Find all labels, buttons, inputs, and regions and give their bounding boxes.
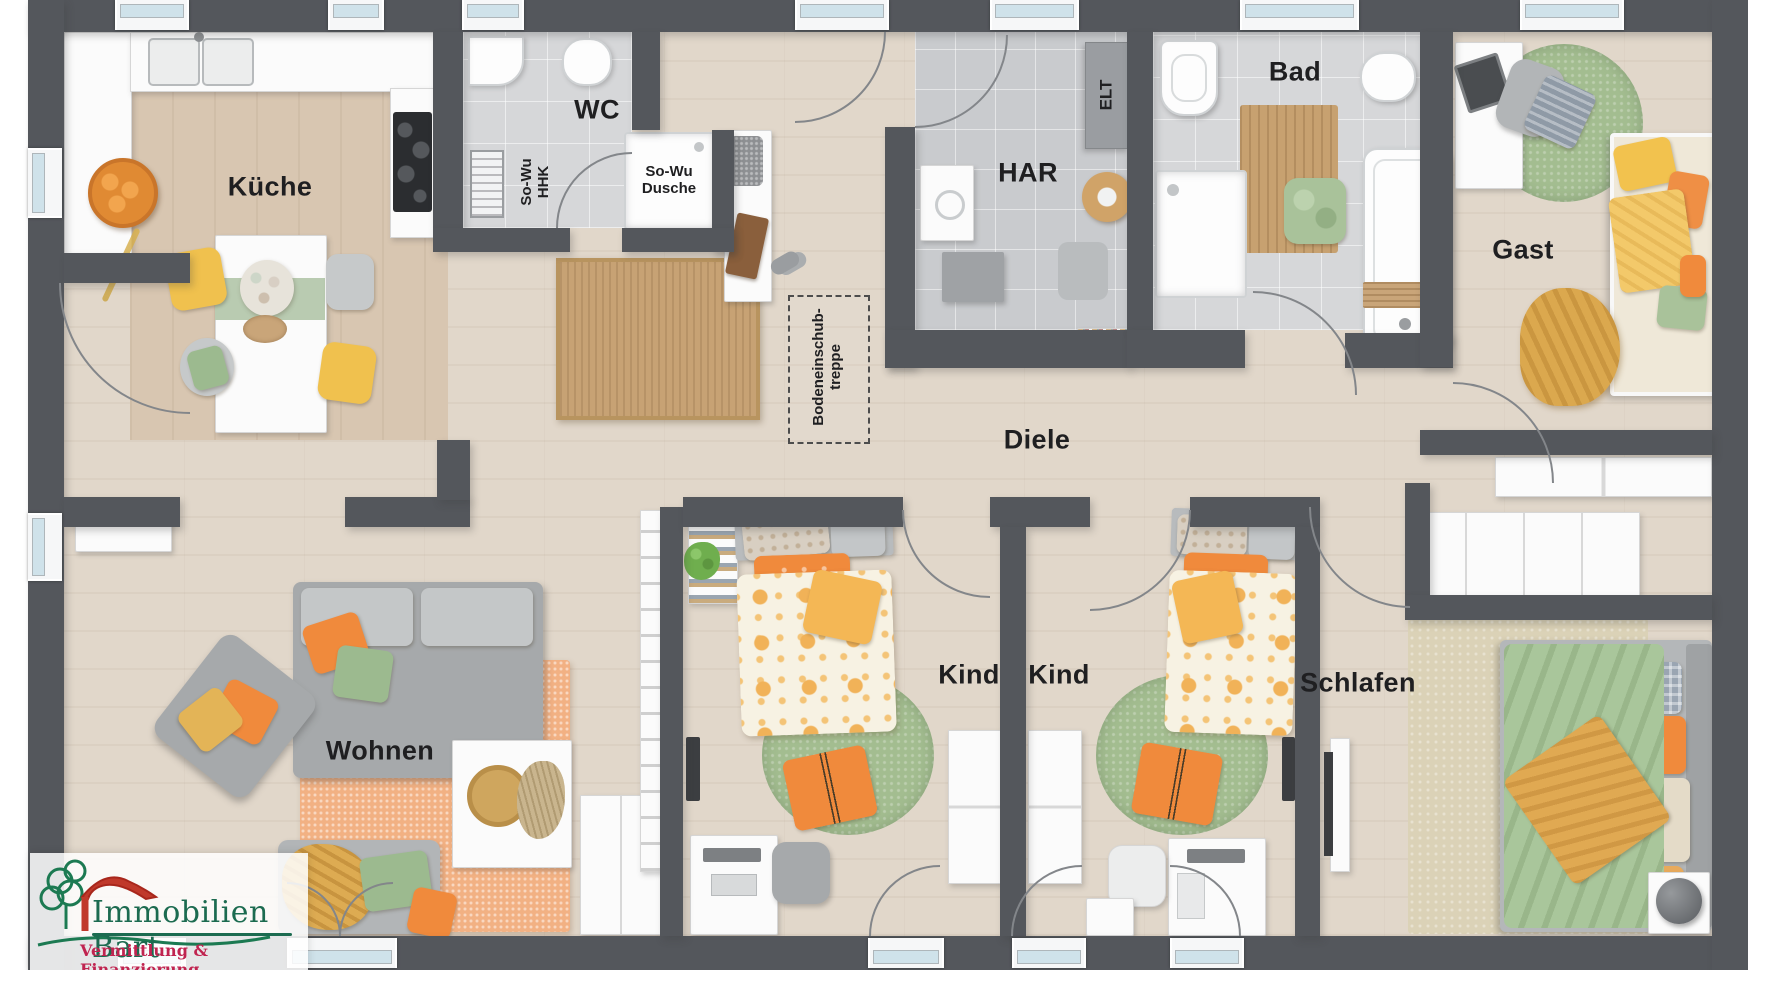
schlafen-tv-board	[1330, 738, 1350, 872]
window-glass	[1017, 950, 1081, 964]
room-label-kind2: Kind	[1028, 660, 1090, 691]
dining-chair-yellow-2	[316, 341, 378, 406]
har-basket	[1082, 172, 1132, 222]
window-gast-top	[1520, 0, 1624, 30]
sofa-pillow-green	[332, 644, 395, 703]
wall-wohnen-stub	[437, 440, 470, 500]
front-door-glass	[800, 4, 884, 18]
annotation-elt: ELT	[1098, 80, 1115, 111]
sink-basin-left	[148, 38, 200, 86]
terrace-door-kind1	[868, 938, 944, 968]
wall-kind1-kind2	[1000, 527, 1026, 936]
window-glass	[120, 4, 184, 18]
wc-radiator	[470, 150, 504, 218]
table-centerpiece-vase	[240, 260, 294, 316]
wall-gast-left	[1420, 32, 1453, 367]
har-appliance-white	[920, 165, 974, 241]
room-label-har: HAR	[998, 158, 1058, 189]
bad-towel-pile	[1284, 178, 1346, 244]
wall-har-bad	[1127, 32, 1153, 330]
bad-shower-tray	[1155, 170, 1247, 298]
room-label-wc: WC	[574, 95, 620, 126]
window-kueche-top-2	[328, 0, 384, 30]
har-appliance-grey	[942, 252, 1004, 302]
wall-shower-bottom	[622, 228, 734, 252]
room-label-wohnen: Wohnen	[326, 736, 434, 767]
fruit-bowl	[88, 158, 158, 228]
kind1-keyboard	[711, 874, 757, 896]
shower-drain	[694, 142, 704, 152]
wall-niche-left	[1405, 483, 1430, 595]
kitchen-left-cabinets	[64, 32, 132, 269]
room-label-kueche: Küche	[228, 172, 313, 203]
sowu-hhk-line2: HHK	[535, 166, 552, 199]
outer-wall-left	[28, 0, 64, 970]
kind2-pc	[1177, 873, 1205, 919]
wall-gast-bottom	[1420, 430, 1712, 455]
sink-faucet	[194, 32, 204, 42]
window-kueche-left	[28, 148, 62, 218]
wall-wohnen-top-left	[64, 497, 180, 527]
wall-wc-right-upper	[632, 32, 660, 130]
kind2-desk	[1168, 838, 1266, 936]
kind1-tv	[686, 737, 700, 801]
bad-shower-drain	[1167, 184, 1179, 196]
gast-blanket-pile	[1520, 288, 1620, 406]
window-bad-top	[1240, 0, 1359, 30]
terrace-door-kind2	[1012, 938, 1086, 968]
wc-toilet-bowl	[562, 38, 612, 86]
har-laundry-pile	[1058, 242, 1108, 300]
window-kueche-top-1	[115, 0, 189, 30]
kind2-tv	[1282, 737, 1295, 801]
schlafen-plant-ball	[1656, 878, 1702, 924]
annotation-sowu-dusche: So-Wu Dusche	[642, 163, 696, 197]
page-margin-bottom	[0, 970, 1778, 1000]
window-glass	[32, 153, 45, 213]
wc-toilet	[556, 36, 614, 84]
wc-corner-sink	[468, 36, 524, 86]
window-glass	[32, 518, 45, 576]
realtor-logo: Immobilien Bart Vermittlung & Finanzieru…	[30, 853, 308, 971]
page-margin-left	[0, 0, 28, 1000]
niche-wardrobe-top	[1495, 457, 1712, 497]
kind1-wardrobe	[948, 730, 1002, 884]
bad-toilet	[1358, 50, 1420, 100]
kind2-dresser	[1086, 898, 1134, 936]
coffee-table-plant	[517, 761, 565, 839]
cooktop	[393, 112, 432, 212]
window-glass	[1175, 950, 1239, 964]
window-glass	[333, 4, 379, 18]
wall-har-bottom	[885, 330, 1130, 368]
wall-wc-bottom	[433, 228, 570, 252]
appliance-door-circle	[935, 190, 965, 220]
sowu-dusche-line2: Dusche	[642, 180, 696, 197]
bathtub-faucet	[1399, 318, 1411, 330]
floor-plan-image: Küche WC HAR Bad Gast Diele Wohnen Kind …	[0, 0, 1778, 1000]
window-glass	[873, 950, 939, 964]
kind1-desk	[690, 835, 778, 935]
room-label-gast: Gast	[1492, 235, 1554, 266]
wall-bad-bottom-left	[1127, 330, 1245, 368]
sofa-back-cushion-2	[421, 588, 533, 646]
wall-niche-bottom	[1405, 595, 1712, 620]
kind1-monitor	[703, 848, 761, 862]
annotation-treppe: Bodeneinschub- treppe	[810, 308, 844, 426]
table-plate	[243, 315, 287, 343]
front-door	[795, 0, 889, 30]
page-margin-right	[1748, 0, 1778, 1000]
niche-wardrobe-main	[1408, 512, 1640, 596]
window-glass	[467, 4, 519, 18]
window-wc-top	[462, 0, 524, 30]
coffee-table	[452, 740, 572, 868]
room-label-schlafen: Schlafen	[1300, 668, 1416, 699]
wall-kind2-schlafen	[1295, 527, 1320, 936]
room-label-bad: Bad	[1269, 57, 1321, 88]
treppe-line1: Bodeneinschub-	[810, 308, 827, 426]
bad-sink	[1160, 40, 1218, 116]
wall-kueche-wc	[433, 32, 463, 228]
ottoman-pillow-orange	[406, 886, 459, 940]
annotation-sowu-hhk: So-Wu HHK	[518, 158, 552, 205]
wall-kind-top-3	[1190, 497, 1320, 527]
sink-basin-right	[202, 38, 254, 86]
window-glass	[995, 4, 1074, 18]
bad-sink-basin	[1171, 54, 1207, 102]
window-har-top	[990, 0, 1079, 30]
kind2-floor-cushion	[1130, 741, 1223, 826]
window-wohnen-left	[28, 513, 62, 581]
kitchen-sink	[148, 36, 254, 86]
schlafen-tv	[1324, 752, 1333, 856]
sowu-dusche-line1: So-Wu	[645, 163, 692, 180]
window-glass	[1525, 4, 1619, 18]
treppe-line2: treppe	[827, 344, 844, 390]
logo-underline	[92, 933, 292, 936]
gast-bed	[1610, 133, 1720, 396]
dining-chair-grey-1	[326, 254, 374, 310]
kind1-desk-chair	[772, 842, 830, 904]
wall-kind-top-1	[683, 497, 903, 527]
wall-wohnen-top-right	[345, 497, 470, 527]
kind2-bed	[1164, 508, 1302, 736]
gast-pillow-orange-sm	[1680, 255, 1706, 297]
room-label-diele: Diele	[1004, 425, 1071, 456]
wall-kind-top-2	[990, 497, 1090, 527]
kind2-wardrobe	[1028, 730, 1082, 884]
room-label-kind1: Kind	[938, 660, 1000, 691]
bad-toilet-bowl	[1360, 52, 1416, 102]
wall-kind1-left	[660, 507, 683, 936]
sowu-hhk-line1: So-Wu	[518, 158, 535, 205]
corridor-bookshelf	[640, 510, 662, 872]
outer-wall-right	[1712, 0, 1748, 970]
entry-bag	[729, 136, 763, 186]
kind2-blanket-yellow	[1171, 569, 1245, 644]
kind2-monitor	[1187, 849, 1245, 863]
terrace-door-schlafen	[1170, 938, 1244, 968]
wall-kueche-stub	[64, 253, 190, 283]
window-glass	[1245, 4, 1354, 18]
kind1-bed	[734, 507, 900, 736]
